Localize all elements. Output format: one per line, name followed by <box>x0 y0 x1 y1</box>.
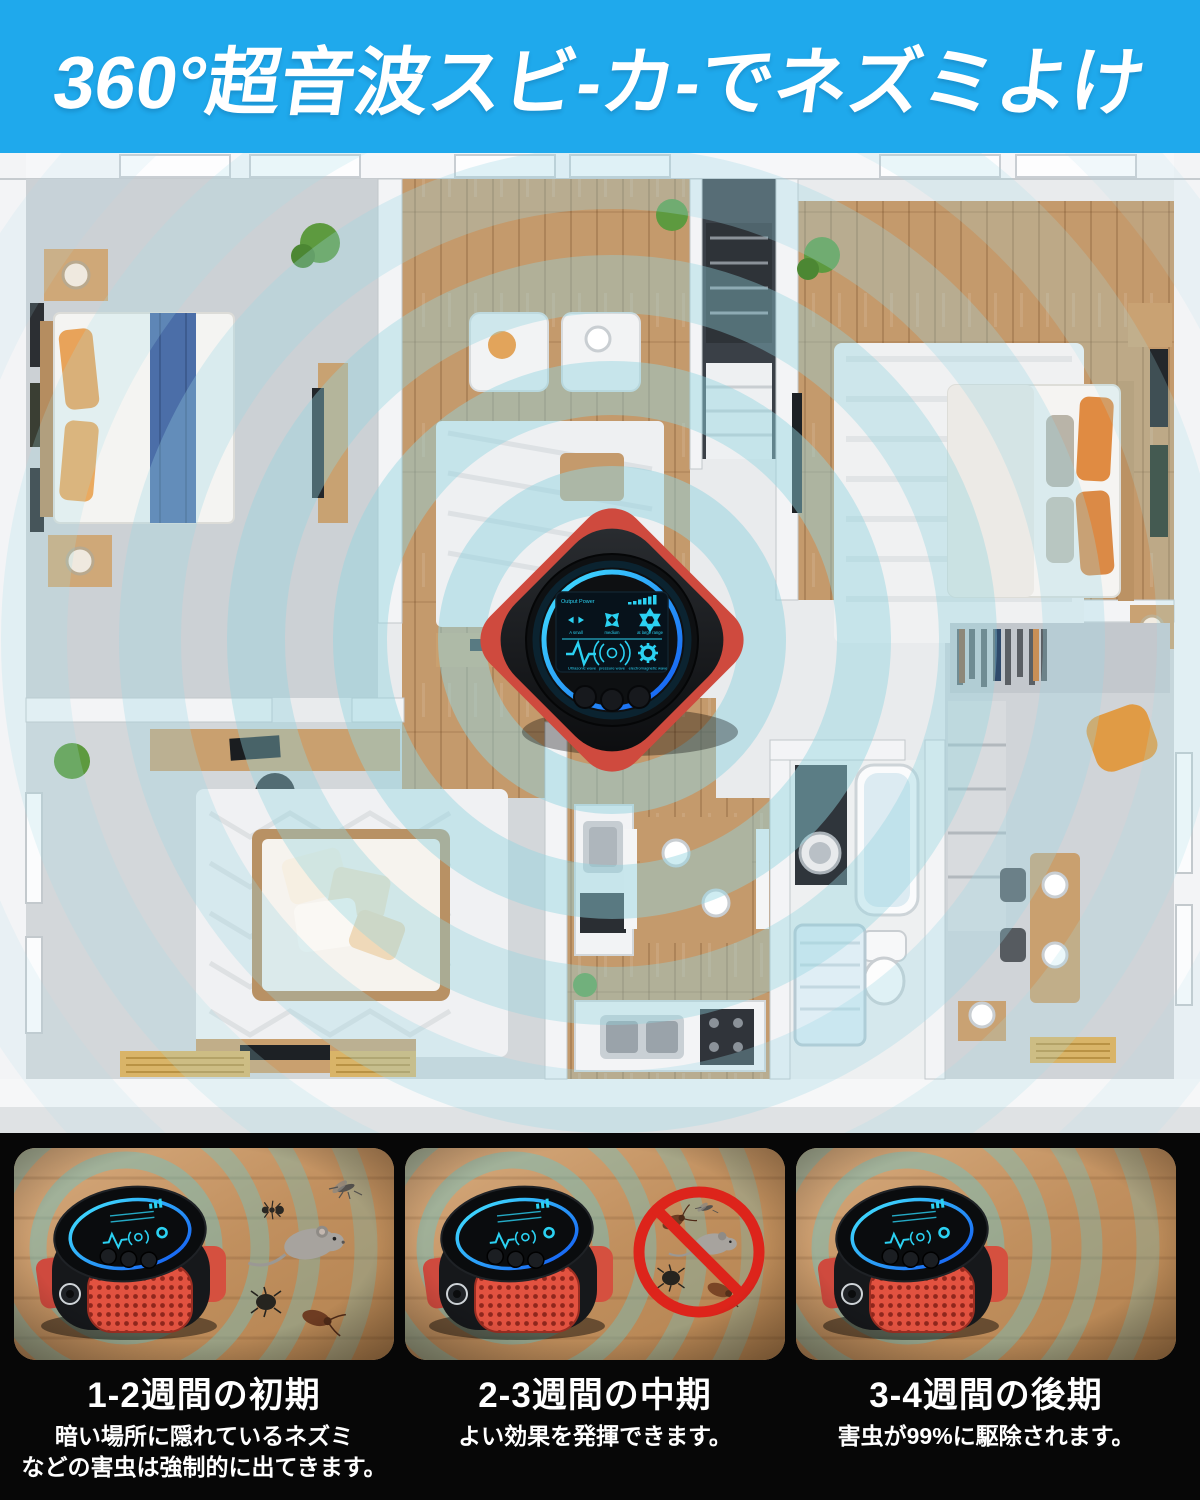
stage-3-title: 3-4週間の後期 <box>869 1377 1103 1416</box>
range-medium-label: medium <box>605 630 620 635</box>
stage-1-title: 1-2週間の初期 <box>87 1377 321 1416</box>
stage-3: 3-4週間の後期 害虫が99%に駆除されます。 <box>796 1148 1176 1500</box>
floorplan-illustration: Output Power A small med <box>0 153 1200 1133</box>
stage-1-description: 暗い場所に隠れているネズミ などの害虫は強制的に出てきます。 <box>21 1421 386 1483</box>
floorplan-svg: Output Power A small med <box>0 153 1200 1133</box>
stages-section: 1-2週間の初期 暗い場所に隠れているネズミ などの害虫は強制的に出てきます。 <box>0 1133 1200 1500</box>
stage-3-description: 害虫が99%に駆除されます。 <box>838 1421 1135 1452</box>
product-marketing-image: 360°超音波スビ-カ-でネズミよけ <box>0 0 1200 1500</box>
stage-2-title: 2-3週間の中期 <box>478 1377 712 1416</box>
stage-1: 1-2週間の初期 暗い場所に隠れているネズミ などの害虫は強制的に出てきます。 <box>14 1148 394 1500</box>
stage-2-photo <box>405 1148 785 1360</box>
stage-3-photo <box>796 1148 1176 1360</box>
stage-1-photo <box>14 1148 394 1360</box>
stage-2-description: よい効果を発揮できます。 <box>458 1421 732 1452</box>
device-screen: Output Power A small med <box>556 592 668 672</box>
electromagnetic-wave-label: electromagnetic wave <box>629 666 668 671</box>
range-small-label: A small <box>569 630 583 635</box>
stage-2: 2-3週間の中期 よい効果を発揮できます。 <box>405 1148 785 1500</box>
pressure-wave-label: pressure wave <box>599 666 626 671</box>
header-banner: 360°超音波スビ-カ-でネズミよけ <box>0 0 1200 153</box>
device-buttons <box>574 686 650 711</box>
screen-power-label: Output Power <box>561 599 595 605</box>
page-title: 360°超音波スビ-カ-でネズミよけ <box>47 23 1152 130</box>
ultrasonic-wave-label: Ultrasonic wave <box>568 666 597 671</box>
range-large-label: at large range <box>637 630 664 635</box>
